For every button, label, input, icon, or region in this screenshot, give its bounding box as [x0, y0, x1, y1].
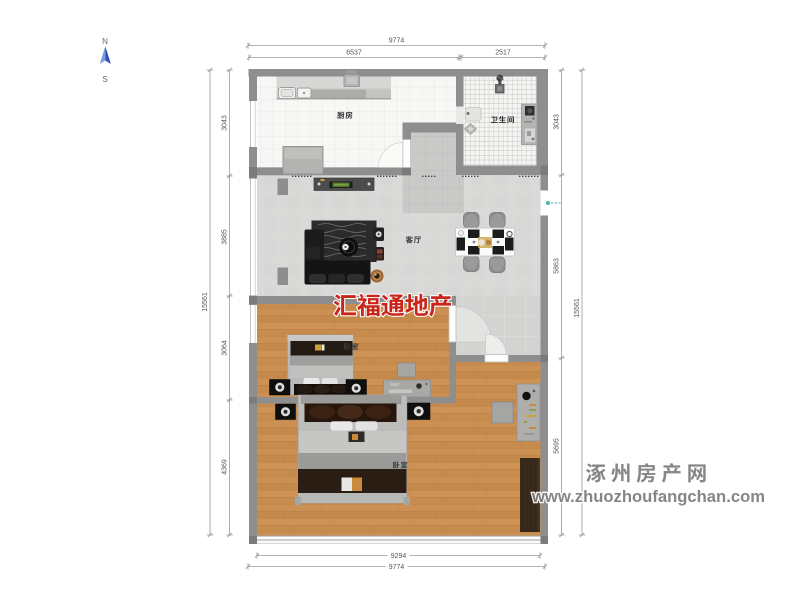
- svg-text:3064: 3064: [222, 340, 229, 356]
- svg-text:6537: 6537: [346, 50, 362, 57]
- svg-text:9294: 9294: [391, 553, 407, 560]
- svg-text:N: N: [102, 37, 108, 46]
- svg-text:2517: 2517: [495, 50, 511, 57]
- svg-text:15561: 15561: [574, 298, 581, 318]
- svg-text:S: S: [102, 75, 107, 84]
- svg-text:4369: 4369: [222, 459, 229, 475]
- svg-text:9774: 9774: [389, 564, 405, 571]
- svg-text:3043: 3043: [222, 115, 229, 131]
- svg-text:www.zhuozhoufangchan.com: www.zhuozhoufangchan.com: [531, 487, 765, 506]
- svg-text:3043: 3043: [554, 114, 561, 130]
- svg-text:5695: 5695: [554, 438, 561, 454]
- svg-text:15561: 15561: [202, 292, 209, 312]
- svg-text:3885: 3885: [222, 229, 229, 245]
- svg-text:9774: 9774: [389, 38, 405, 45]
- svg-text:5863: 5863: [554, 258, 561, 274]
